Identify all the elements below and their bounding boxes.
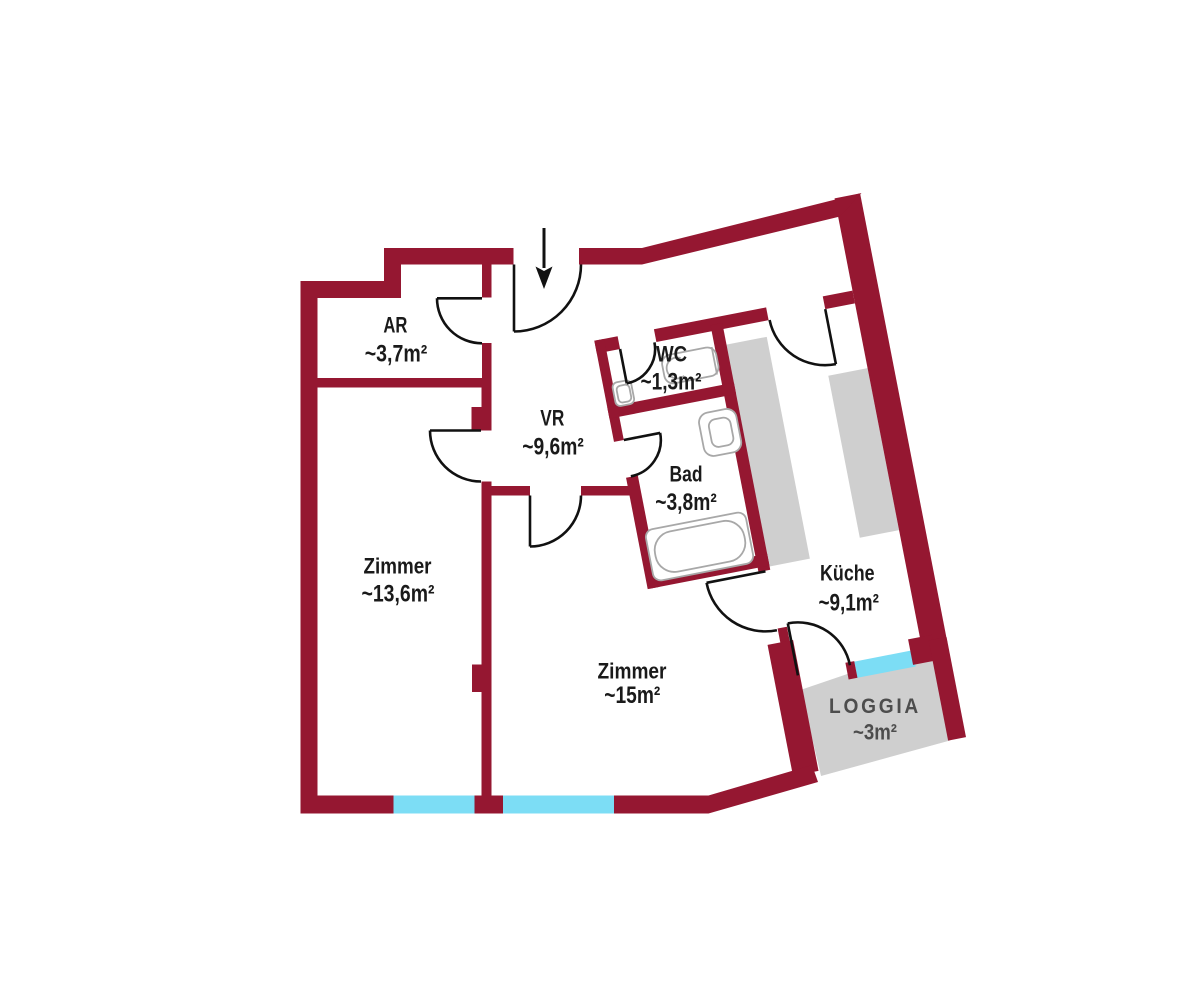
svg-text:~9,6m²: ~9,6m² bbox=[522, 434, 584, 461]
svg-text:VR: VR bbox=[540, 405, 564, 430]
svg-text:~3,8m²: ~3,8m² bbox=[655, 489, 717, 516]
svg-text:WC: WC bbox=[656, 342, 687, 367]
svg-text:~15m²: ~15m² bbox=[604, 682, 660, 709]
svg-text:Bad: Bad bbox=[670, 462, 703, 487]
svg-text:AR: AR bbox=[383, 313, 407, 338]
svg-text:Zimmer: Zimmer bbox=[364, 553, 432, 578]
svg-text:~3m²: ~3m² bbox=[853, 720, 897, 745]
svg-text:LOGGIA: LOGGIA bbox=[829, 695, 921, 718]
svg-text:~1,3m²: ~1,3m² bbox=[641, 368, 702, 395]
svg-text:~13,6m²: ~13,6m² bbox=[362, 581, 435, 608]
svg-text:~3,7m²: ~3,7m² bbox=[365, 341, 428, 368]
svg-text:Küche: Küche bbox=[820, 561, 875, 586]
svg-text:~9,1m²: ~9,1m² bbox=[818, 590, 879, 617]
svg-text:Zimmer: Zimmer bbox=[598, 659, 667, 684]
